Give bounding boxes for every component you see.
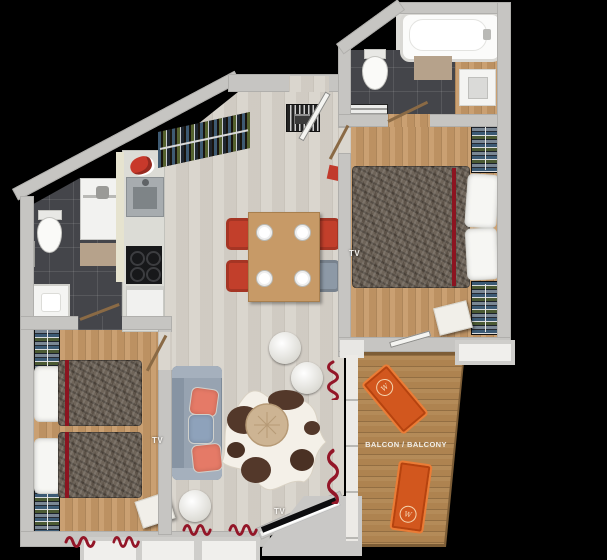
wardrobe-rail xyxy=(160,129,248,150)
bed-pillow xyxy=(465,227,500,281)
lounger-logo-letter: W xyxy=(404,510,412,519)
plate-icon xyxy=(294,224,311,241)
wardrobe-rail xyxy=(47,324,48,372)
dining-table xyxy=(248,212,320,302)
single-bed xyxy=(58,432,142,498)
tv-label: TV xyxy=(152,436,163,445)
washing-machine xyxy=(459,69,496,106)
blanket-trim xyxy=(65,432,69,498)
sink-basin xyxy=(133,187,157,209)
wall-top-bathroom xyxy=(395,2,511,14)
burner-icon xyxy=(130,267,145,282)
lounger-logo-letter: W xyxy=(379,382,390,393)
lounger-logo: W xyxy=(398,505,417,524)
shower-head-icon xyxy=(96,186,109,199)
blanket-trim xyxy=(65,360,69,426)
wall-left xyxy=(20,196,34,540)
wardrobe-rail xyxy=(485,284,486,332)
plate-icon xyxy=(294,270,311,287)
white-pouf xyxy=(179,490,211,522)
balcony-label: BALCON / BALCONY xyxy=(360,440,452,449)
tv-label: TV xyxy=(274,507,285,516)
lounger-logo: W xyxy=(373,375,397,399)
washbasin-left-bowl xyxy=(41,293,61,312)
window-sill xyxy=(138,537,198,560)
cowhide-rug xyxy=(214,372,334,502)
curtain-icon xyxy=(112,536,142,548)
plate-icon xyxy=(256,270,273,287)
bath-mat-top xyxy=(414,56,452,80)
window-sill xyxy=(198,537,260,560)
sofa-pillow-blue xyxy=(188,414,214,444)
wall-diagonal-bathroom xyxy=(336,0,405,55)
kitchen-side-panel xyxy=(116,152,124,282)
burner-icon xyxy=(130,251,145,266)
blanket-trim xyxy=(452,168,456,286)
window-sill xyxy=(455,340,515,365)
burner-icon xyxy=(146,251,161,266)
washing-machine-door xyxy=(468,77,488,99)
bath-faucet-icon xyxy=(483,29,491,40)
cooktop xyxy=(126,246,162,284)
curtain-icon xyxy=(228,524,260,536)
wall-right xyxy=(497,2,511,352)
tv-panel xyxy=(261,497,337,533)
faucet-icon xyxy=(142,179,149,186)
wardrobe xyxy=(472,282,498,334)
plate-icon xyxy=(256,224,273,241)
bed-pillow xyxy=(464,173,500,229)
bathtub xyxy=(400,12,502,62)
bathtub-basin xyxy=(409,19,487,51)
entry-door-gap xyxy=(289,76,329,92)
bath-mat-left xyxy=(80,243,120,266)
white-pouf xyxy=(269,332,301,364)
curtain-icon xyxy=(182,524,214,536)
tv-label: TV xyxy=(349,249,360,258)
curtain-icon xyxy=(64,536,98,548)
curtain-icon xyxy=(327,448,339,504)
wardrobe xyxy=(472,120,498,172)
burner-icon xyxy=(146,267,161,282)
single-bed xyxy=(58,360,142,426)
curtain-icon xyxy=(327,360,339,400)
double-bed xyxy=(352,166,470,288)
sofa-back xyxy=(172,366,184,480)
kitchen-sink xyxy=(126,177,164,217)
wardrobe-rail xyxy=(485,122,486,170)
floorplan: W W BALCON / BALCONY TV TV TV xyxy=(0,0,607,560)
